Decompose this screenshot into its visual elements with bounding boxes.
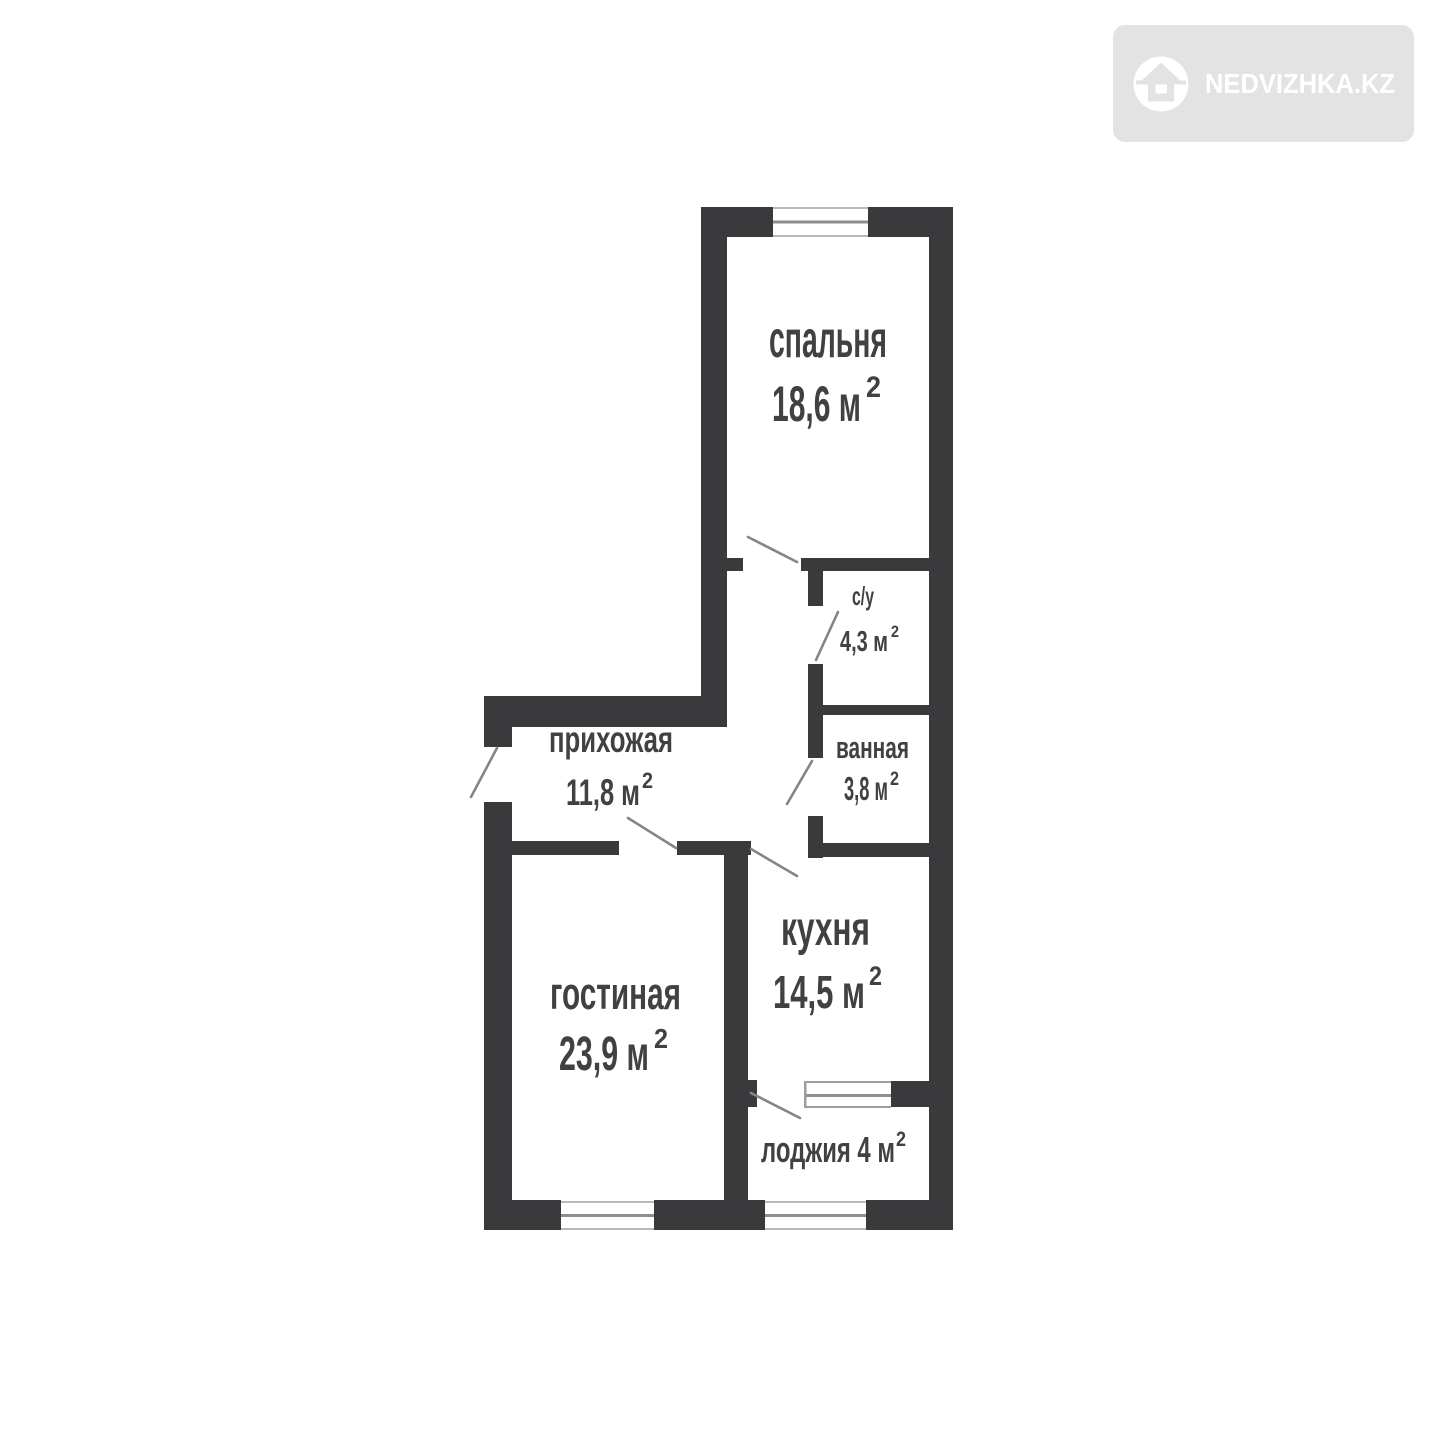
svg-text:2: 2: [896, 1128, 906, 1151]
svg-text:лоджия 4 м: лоджия 4 м: [761, 1129, 895, 1170]
svg-text:4,3 м: 4,3 м: [840, 626, 888, 658]
svg-text:18,6 м: 18,6 м: [772, 376, 861, 432]
svg-text:2: 2: [891, 622, 899, 641]
svg-text:с/у: с/у: [852, 581, 874, 611]
svg-text:2: 2: [890, 769, 899, 790]
svg-text:2: 2: [654, 1023, 668, 1054]
svg-text:2: 2: [869, 961, 882, 991]
svg-text:NEDVIZHKA.KZ: NEDVIZHKA.KZ: [1205, 68, 1395, 99]
svg-text:14,5 м: 14,5 м: [773, 966, 865, 1018]
svg-text:гостиная: гостиная: [550, 968, 681, 1019]
svg-text:23,9 м: 23,9 м: [559, 1028, 649, 1081]
svg-text:3,8 м: 3,8 м: [844, 770, 888, 807]
svg-text:кухня: кухня: [781, 903, 870, 956]
svg-text:11,8 м: 11,8 м: [566, 772, 640, 813]
svg-text:2: 2: [642, 768, 653, 793]
svg-text:прихожая: прихожая: [549, 719, 673, 760]
svg-text:ванная: ванная: [836, 730, 909, 765]
svg-text:2: 2: [866, 371, 881, 404]
svg-text:спальня: спальня: [769, 311, 887, 369]
